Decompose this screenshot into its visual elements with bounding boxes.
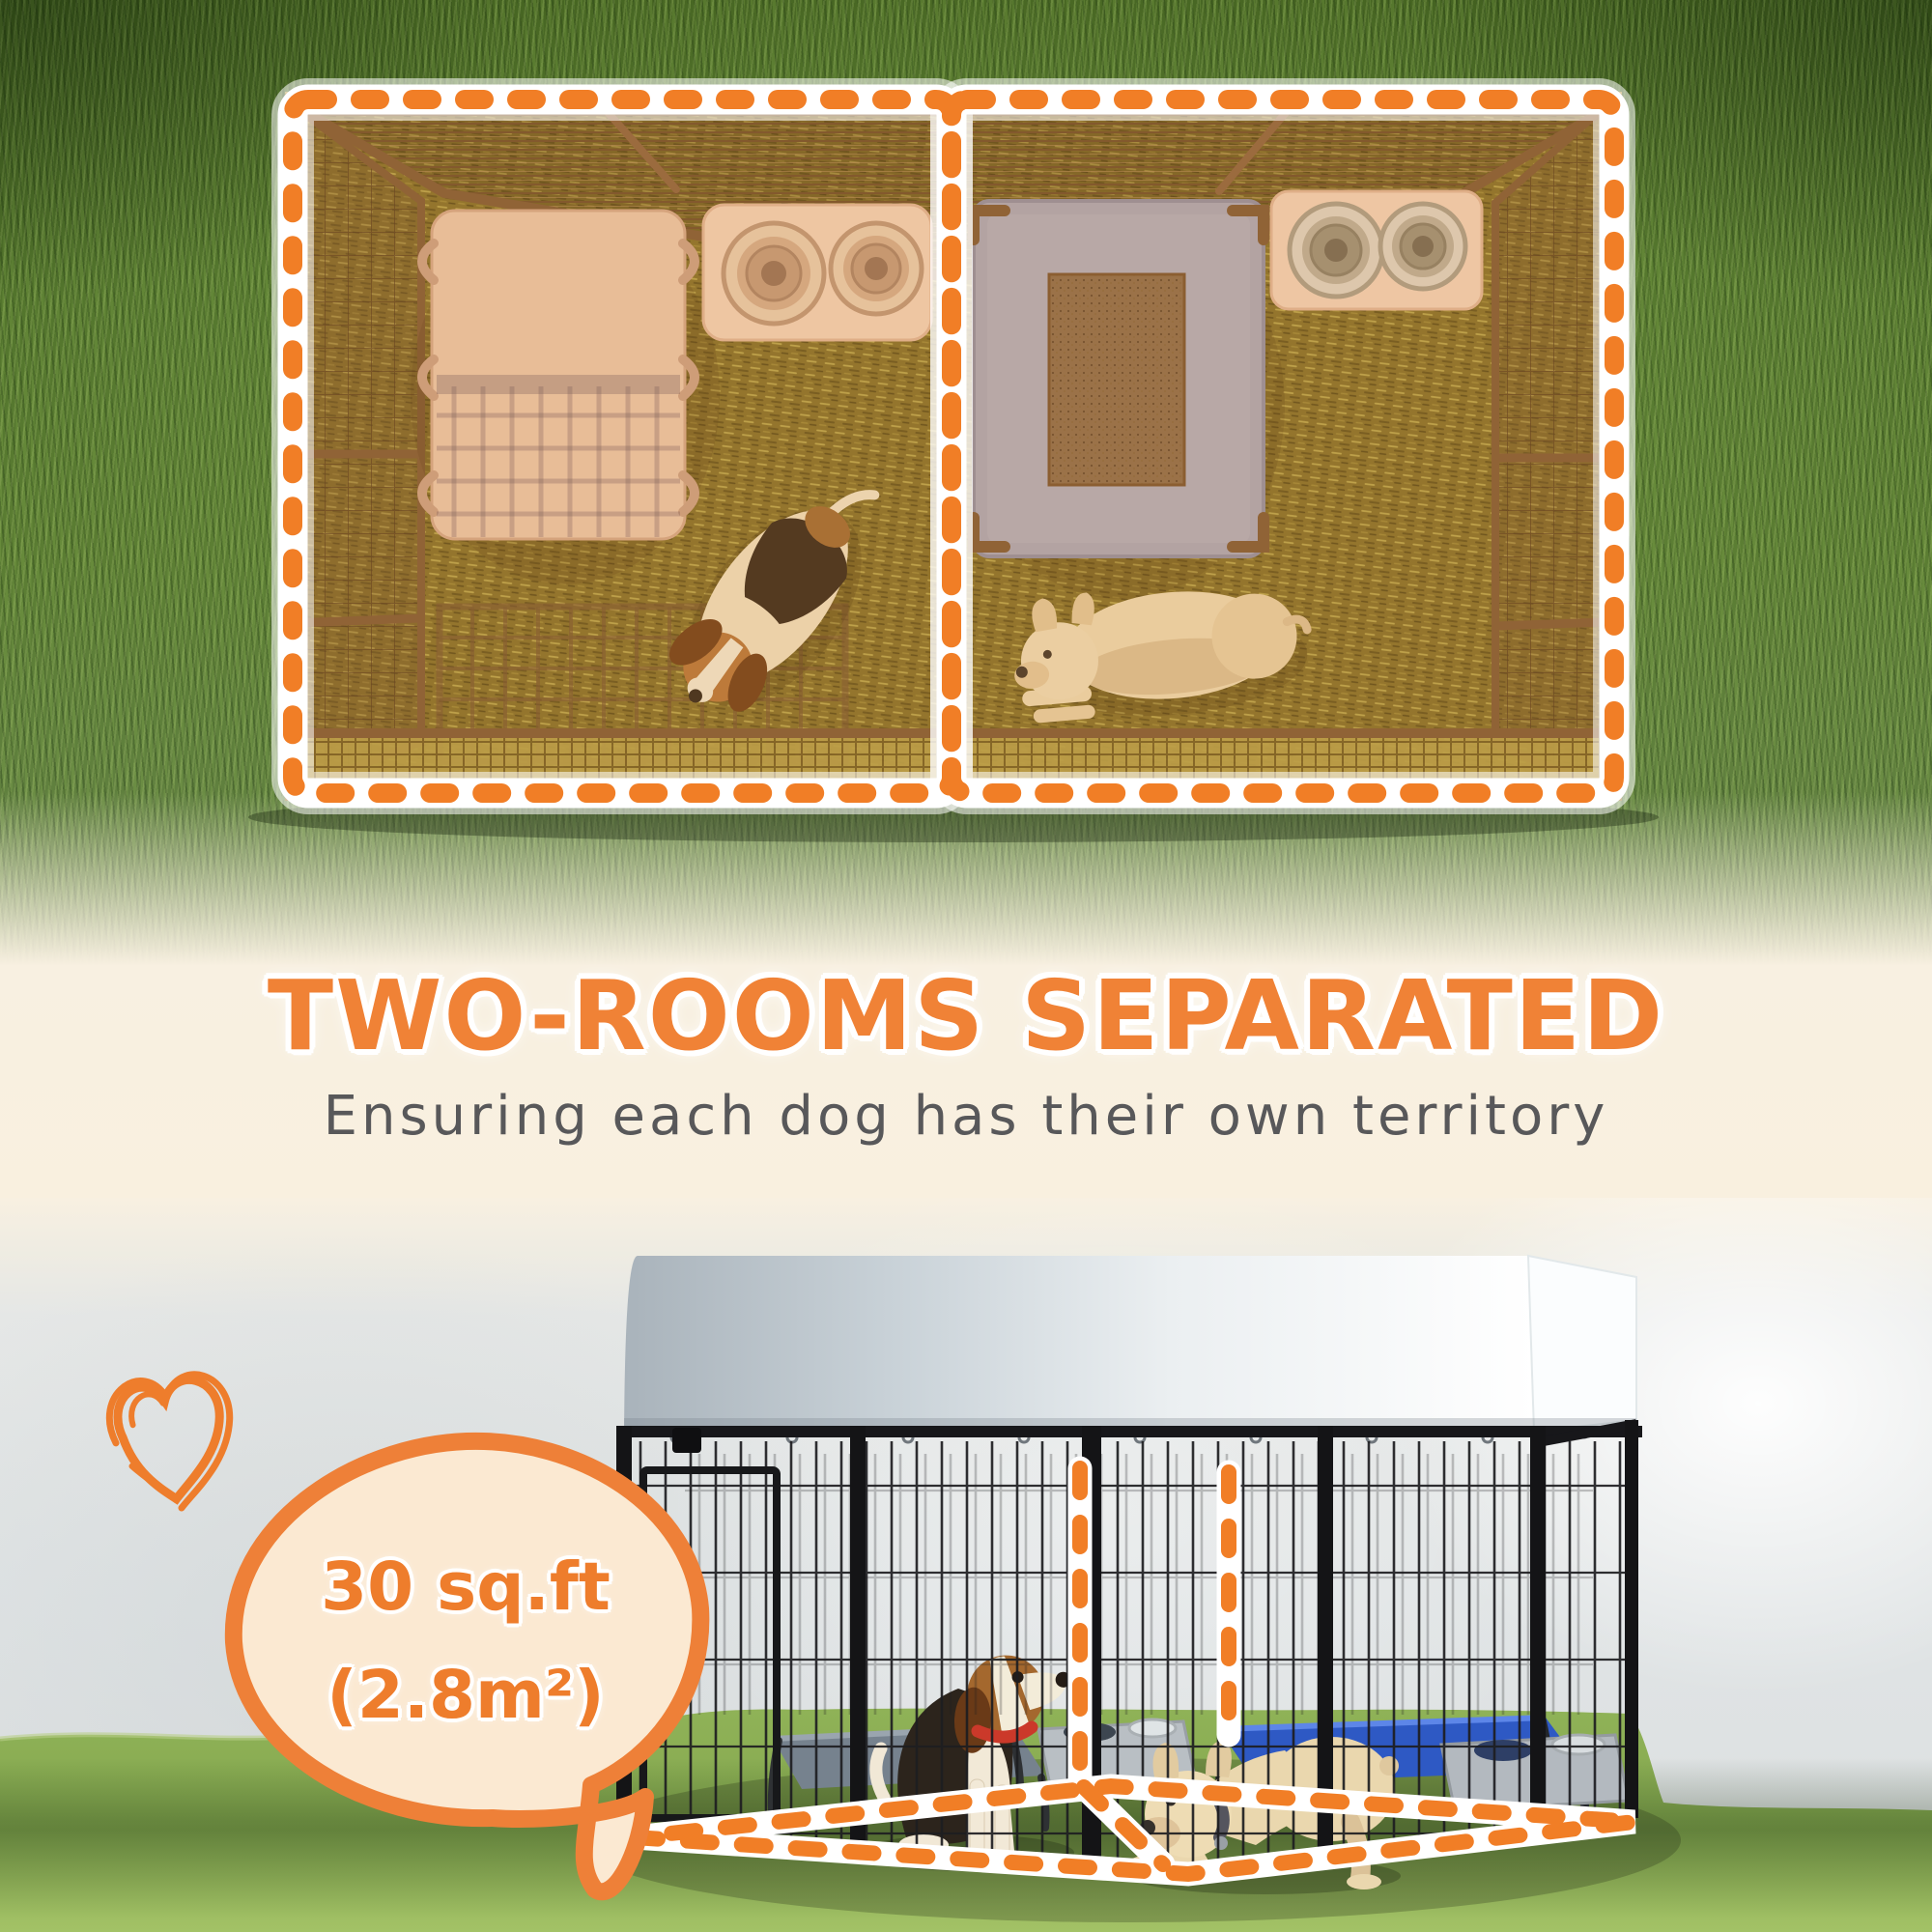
area-badge-line2: (2.8m²) [243, 1642, 688, 1750]
area-badge: 30 sq.ft (2.8m²) [243, 1534, 688, 1750]
product-feature-image: TWO-ROOMS SEPARATED Ensuring each dog ha… [0, 0, 1932, 1932]
area-badge-line1: 30 sq.ft [243, 1534, 688, 1642]
kennel-top-view [232, 39, 1681, 860]
page-title: TWO-ROOMS SEPARATED [0, 968, 1932, 1065]
page-subtitle: Ensuring each dog has their own territor… [0, 1090, 1932, 1144]
wire-mesh-back-panels [685, 1454, 1593, 1715]
